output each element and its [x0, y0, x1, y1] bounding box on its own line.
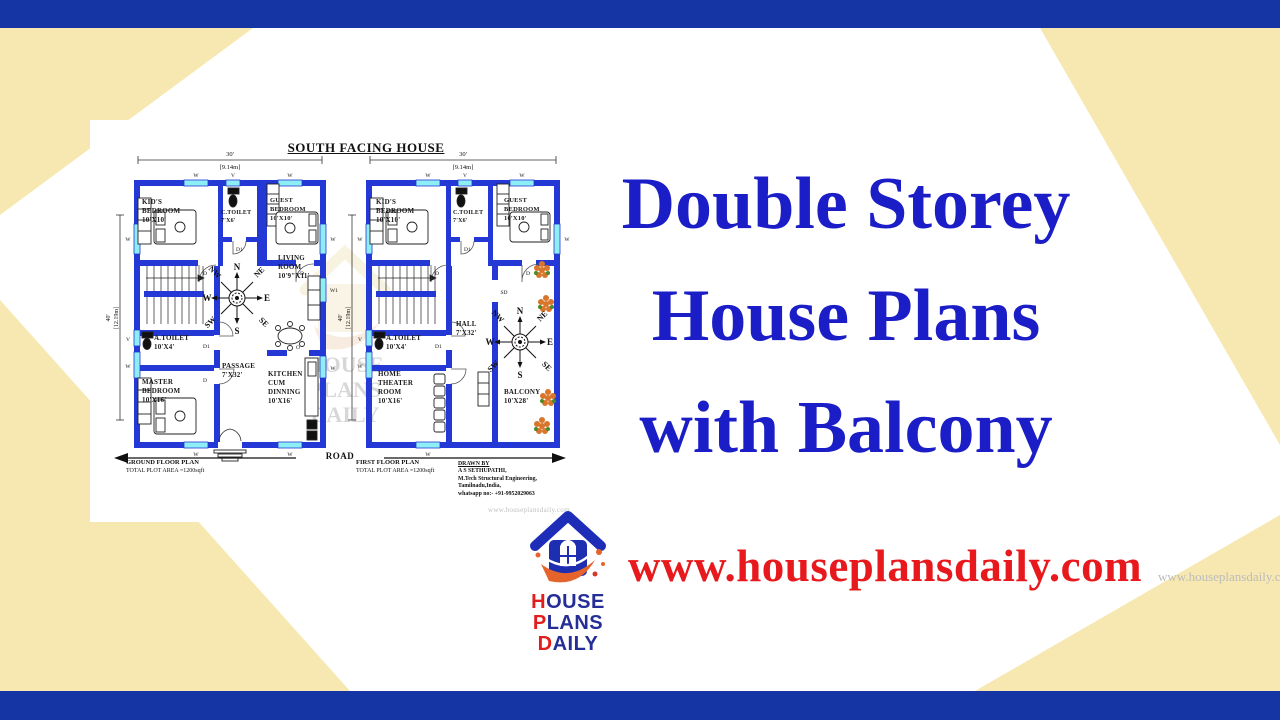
ff-room-hall: HALL7'X32'	[456, 320, 477, 338]
svg-text:SE: SE	[257, 316, 270, 329]
corner-watermark: www.houseplansdaily.com	[1158, 569, 1280, 585]
gf-room-atoilet: A.TOILET10'X4'	[154, 334, 189, 352]
svg-text:W: W	[425, 173, 431, 179]
house-logo-icon	[525, 508, 611, 592]
ff-room-atoilet: A.TOILET10'X4'	[386, 334, 421, 352]
svg-text:S: S	[517, 370, 522, 380]
headline-title: Double Storey House Plans with Balcony	[588, 148, 1104, 484]
gf-furniture	[138, 184, 320, 461]
svg-text:[12.19m]: [12.19m]	[114, 307, 120, 329]
gf-width-m: [9.14m]	[220, 164, 241, 171]
svg-text:W: W	[486, 337, 495, 347]
bottom-navy-bar	[0, 691, 1280, 720]
svg-text:V: V	[463, 173, 467, 179]
svg-text:D: D	[203, 271, 207, 277]
svg-text:W: W	[203, 293, 212, 303]
svg-text:D1: D1	[203, 344, 210, 350]
svg-text:W: W	[330, 237, 336, 243]
svg-text:SW: SW	[486, 359, 501, 374]
svg-text:D: D	[203, 378, 207, 384]
svg-text:W: W	[125, 237, 131, 243]
floor-plan-sheet: HOUSE PLANS DAILY 30' [9.14m] 30' [9.14m…	[90, 120, 582, 522]
gf-width-ft: 30'	[226, 151, 234, 158]
headline-line-2: House Plans	[588, 260, 1104, 372]
gf-room-master-bedroom: MASTER BEDROOM10'X16'	[142, 378, 180, 405]
gf-room-guest-bedroom: GUEST BEDROOM10'X10'	[270, 196, 306, 223]
svg-text:W1: W1	[330, 288, 338, 294]
headline-line-3: with Balcony	[588, 372, 1104, 484]
svg-text:SD: SD	[500, 290, 507, 296]
svg-text:SE: SE	[540, 360, 553, 373]
svg-text:D1: D1	[236, 247, 243, 253]
svg-text:S: S	[234, 326, 239, 336]
ff-room-guest-bedroom: GUEST BEDROOM10'X10'	[504, 196, 540, 223]
svg-text:W: W	[357, 237, 363, 243]
svg-text:W: W	[125, 364, 131, 370]
svg-text:O: O	[296, 345, 300, 351]
ff-width-m: [9.14m]	[453, 164, 474, 171]
ff-balcony-plants	[534, 261, 556, 434]
thumbnail-canvas: { "sheet": { "title": "SOUTH FACING HOUS…	[0, 0, 1280, 720]
svg-text:40': 40'	[106, 314, 112, 321]
svg-text:W: W	[193, 173, 199, 179]
svg-text:W: W	[564, 237, 570, 243]
svg-text:D: D	[435, 271, 439, 277]
gf-compass-icon: N E S W NW NE SE SW	[203, 262, 271, 336]
gf-room-kids-bedroom: KID'S BEDROOM10'X10'	[142, 198, 180, 225]
gf-room-living: LIVING ROOM10'9"X11'	[278, 254, 310, 281]
top-navy-bar	[0, 0, 1280, 28]
svg-text:W: W	[330, 366, 336, 372]
website-url: www.houseplansdaily.com	[628, 540, 1138, 592]
ff-room-ctoilet: C.TOILET7'X6'	[453, 210, 483, 225]
svg-text:W: W	[193, 452, 199, 458]
ff-room-kids-bedroom: KID'S BEDROOM10'X10'	[376, 198, 414, 225]
svg-text:D1: D1	[435, 344, 442, 350]
svg-text:W: W	[425, 452, 431, 458]
gf-room-passage: PASSAGE7'X32'	[222, 362, 255, 380]
gf-room-kitchen: KITCHEN CUM DINNING10'X16'	[268, 370, 302, 406]
svg-text:W: W	[519, 173, 525, 179]
svg-text:40': 40'	[338, 314, 344, 321]
drawn-by-block: DRAWN BY A S SETHUPATHI, M.Tech Structur…	[458, 461, 537, 498]
svg-text:N: N	[234, 262, 241, 272]
gf-caption: GROUND FLOOR PLAN TOTAL PLOT AREA =1200s…	[126, 459, 204, 475]
svg-text:W: W	[357, 364, 363, 370]
gf-room-ctoilet: C.TOILET7'X6'	[221, 210, 251, 225]
ff-caption: FIRST FLOOR PLAN TOTAL PLOT AREA =1200sq…	[356, 459, 434, 475]
ff-room-home-theater: HOME THEATER ROOM10'X16'	[378, 370, 413, 406]
svg-text:NE: NE	[252, 265, 266, 279]
svg-text:V: V	[358, 337, 362, 343]
ff-room-balcony: BALCONY10'X28'	[504, 388, 540, 406]
svg-text:E: E	[547, 337, 553, 347]
road-label: ROAD	[290, 451, 390, 461]
svg-text:[12.19m]: [12.19m]	[346, 307, 352, 329]
brand-logo-text: HOUSE PLANS DAILY	[498, 592, 638, 655]
svg-text:V: V	[231, 173, 235, 179]
headline-line-1: Double Storey	[588, 148, 1104, 260]
svg-text:N: N	[517, 306, 524, 316]
gf-height-dim: 40' [12.19m]	[106, 307, 120, 329]
svg-text:D: D	[526, 271, 530, 277]
svg-text:E: E	[264, 293, 270, 303]
plan-sheet-title: SOUTH FACING HOUSE	[236, 140, 496, 156]
svg-text:V: V	[126, 337, 130, 343]
brand-logo: HOUSE PLANS DAILY	[498, 508, 638, 655]
svg-text:D1: D1	[464, 247, 471, 253]
svg-text:W: W	[287, 173, 293, 179]
